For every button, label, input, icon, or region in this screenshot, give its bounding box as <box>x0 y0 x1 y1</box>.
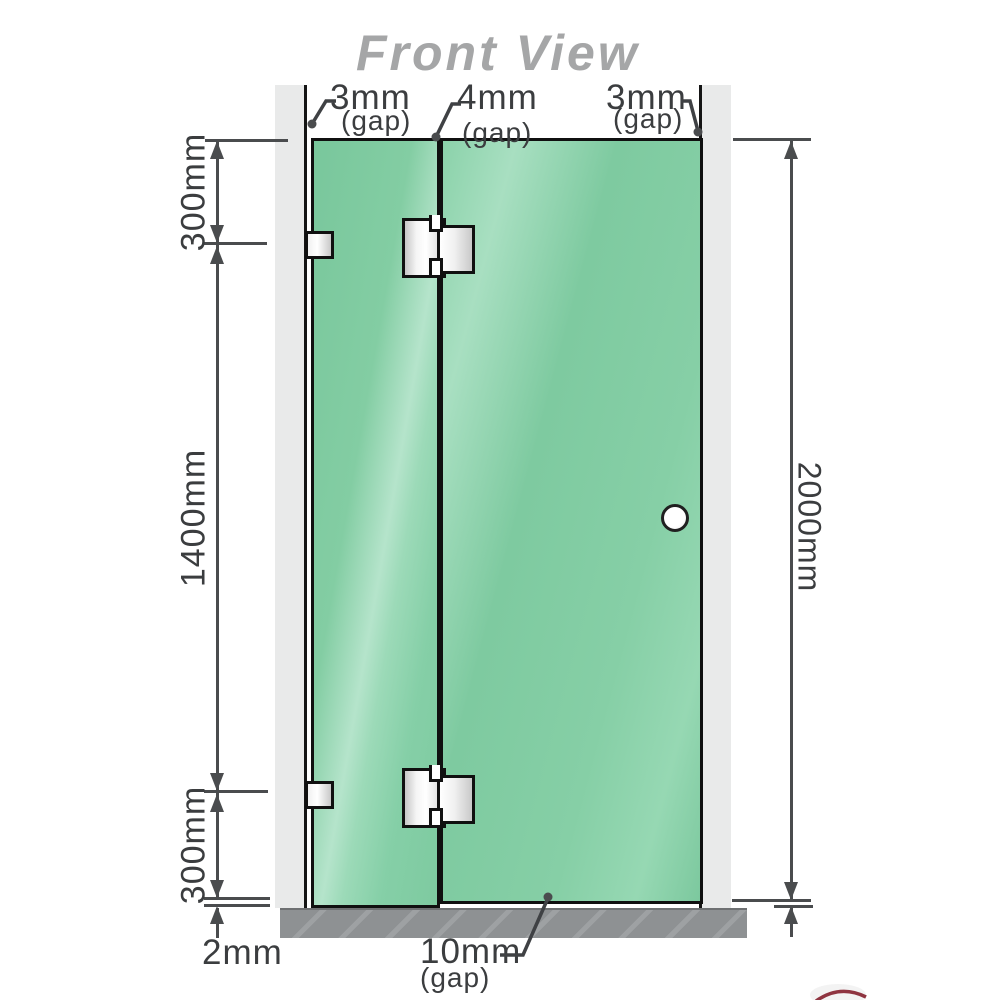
hinge-gap-notch <box>429 258 443 275</box>
hinge-gap-notch <box>429 765 443 782</box>
dimension-label-middle-left: 1400mm <box>175 449 214 587</box>
dimension-label-right: 2000mm <box>791 462 828 593</box>
base-gap-label: 2mm <box>202 933 283 973</box>
gap-label-middle-note: (gap) <box>462 117 532 149</box>
dim-tick <box>733 138 811 141</box>
dim-tick <box>732 899 811 902</box>
left-wall-channel <box>275 85 307 908</box>
gap-label-middle-value: 4mm <box>457 78 538 118</box>
leader-dot-icon <box>308 120 317 129</box>
right-wall-channel <box>699 85 731 908</box>
arrow-up-icon <box>210 906 224 924</box>
wall-bracket-top <box>305 231 334 259</box>
dimension-label-top-left: 300mm <box>175 133 214 251</box>
front-view-diagram: Front View 300mm <box>0 0 1000 1000</box>
hinge-gap-notch <box>429 215 443 232</box>
gap-label-left-note: (gap) <box>341 105 411 137</box>
hinge-gap-notch <box>429 808 443 825</box>
watermark-fragment <box>810 984 866 1000</box>
arrow-up-icon <box>784 141 798 159</box>
dimension-label-bottom-left: 300mm <box>175 786 214 904</box>
arrow-up-icon <box>784 906 798 924</box>
wall-bracket-bottom <box>305 781 334 809</box>
gap-label-right-note: (gap) <box>613 103 683 135</box>
arrow-down-icon <box>784 882 798 900</box>
door-knob <box>661 504 689 532</box>
diagram-title: Front View <box>356 24 640 82</box>
bottom-gap-note: (gap) <box>420 962 490 994</box>
